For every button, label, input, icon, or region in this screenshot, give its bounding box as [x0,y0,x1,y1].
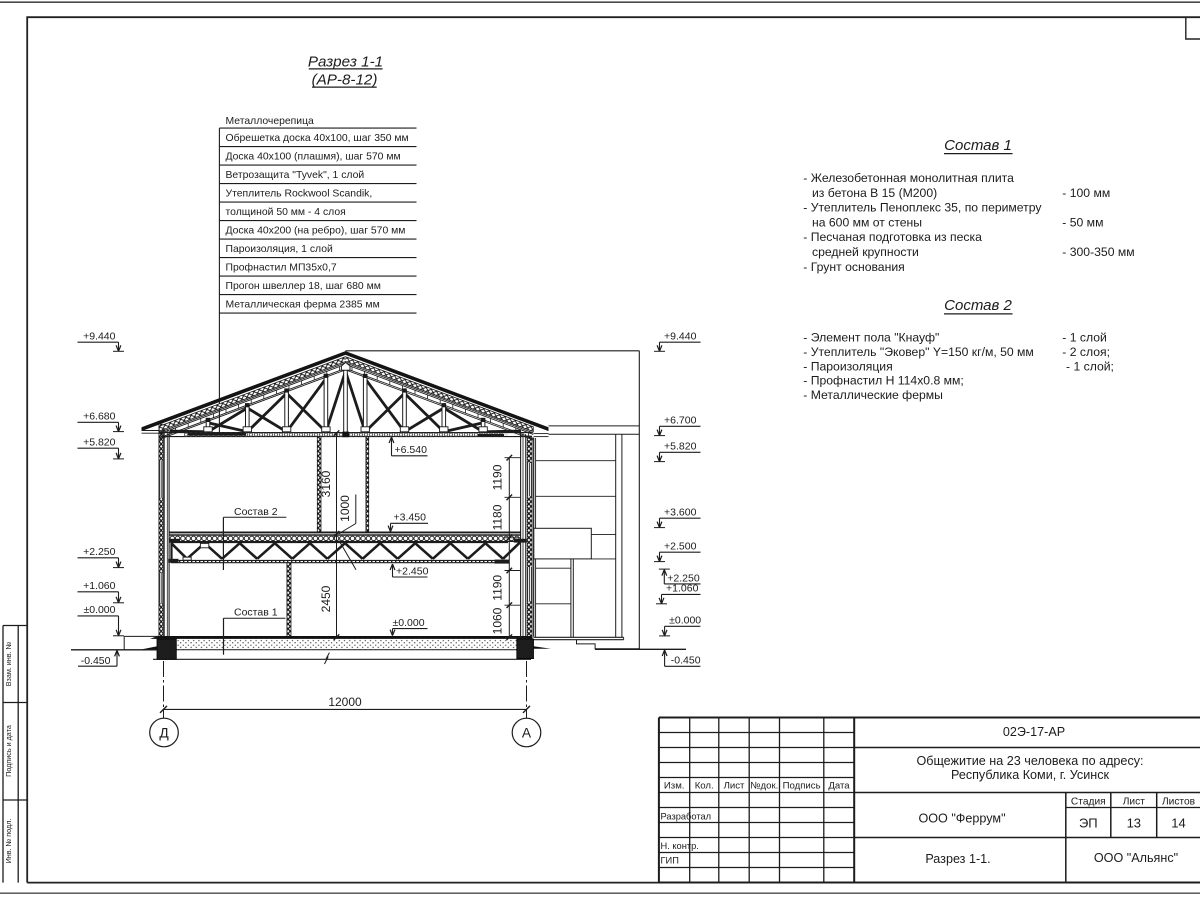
svg-text:Подпись: Подпись [783,781,821,792]
svg-text:13: 13 [1127,815,1141,830]
svg-text:ГИП: ГИП [661,855,679,865]
svg-text:+1.060: +1.060 [83,580,116,592]
svg-text:Обрешетка доска 40х100, шаг 35: Обрешетка доска 40х100, шаг 350 мм [226,132,409,144]
svg-text:Общежитие на 23 человека по ад: Общежитие на 23 человека по адресу: [916,754,1143,768]
svg-text:+2.250: +2.250 [83,546,116,558]
svg-text:Металлочерепица: Металлочерепица [226,116,315,127]
svg-text:Д: Д [159,725,169,740]
svg-text:- Утеплитель Пеноплекс 35, по: - Утеплитель Пеноплекс 35, по периметру [803,201,1042,215]
svg-text:+6.680: +6.680 [83,411,116,423]
svg-text:Кол.: Кол. [695,781,714,792]
svg-text:+9.440: +9.440 [83,330,116,342]
svg-text:средней крупности: средней крупности [812,245,919,259]
svg-text:Состав 2: Состав 2 [234,506,278,518]
svg-text:(АР-8-12): (АР-8-12) [312,71,378,88]
svg-text:- Элемент пола "Кнауф": - Элемент пола "Кнауф" [803,331,939,345]
svg-text:ООО "Альянс": ООО "Альянс" [1094,851,1178,865]
svg-text:- Утеплитель "Эковер" Y=150 кг: - Утеплитель "Эковер" Y=150 кг/м, 50 мм [803,345,1034,359]
svg-text:- Пароизоляция: - Пароизоляция [803,359,892,373]
svg-text:на 600 мм от стены: на 600 мм от стены [812,215,922,229]
svg-text:+5.820: +5.820 [664,441,697,453]
svg-text:+6.700: +6.700 [664,415,697,427]
svg-text:+2.450: +2.450 [396,565,429,577]
svg-text:- 2 слоя;: - 2 слоя; [1062,345,1110,359]
svg-text:Подпись и дата: Подпись и дата [4,725,13,777]
svg-text:±0.000: ±0.000 [669,615,701,627]
svg-text:Утеплитель Rockwool Scandik,: Утеплитель Rockwool Scandik, [226,189,373,200]
svg-text:Лист: Лист [724,781,745,792]
svg-text:+5.820: +5.820 [83,436,116,448]
svg-text:-0.450: -0.450 [81,655,111,667]
svg-text:1060: 1060 [491,607,505,634]
svg-text:Н. контр.: Н. контр. [661,841,699,851]
svg-text:- 100 мм: - 100 мм [1062,186,1110,200]
svg-text:02Э-17-АР: 02Э-17-АР [1003,725,1065,739]
svg-text:- Железобетонная монолитная п: - Железобетонная монолитная плита [803,171,1014,185]
svg-text:- 1 слой;: - 1 слой; [1066,359,1114,373]
svg-text:Стадия: Стадия [1071,796,1106,807]
svg-text:Металлическая ферма 2385 мм: Металлическая ферма 2385 мм [226,299,380,311]
svg-text:Состав 1: Состав 1 [944,137,1012,154]
svg-text:Доска 40х200 (на ребро), шаг 5: Доска 40х200 (на ребро), шаг 570 мм [226,225,406,237]
svg-text:+3.600: +3.600 [664,506,697,518]
svg-text:Состав 2: Состав 2 [944,297,1012,314]
svg-text:- 1 слой: - 1 слой [1062,331,1107,345]
svg-text:из бетона В 15 (М200): из бетона В 15 (М200) [812,186,937,200]
svg-text:Листов: Листов [1162,796,1195,807]
svg-text:Профнастил МП35х0,7: Профнастил МП35х0,7 [226,262,337,274]
svg-text:- 50 мм: - 50 мм [1062,215,1103,229]
svg-text:№док.: №док. [750,781,778,792]
svg-text:+3.450: +3.450 [394,512,427,524]
svg-text:Состав 1: Состав 1 [234,607,278,619]
svg-text:Ветрозащита "Tyvek", 1 слой: Ветрозащита "Tyvek", 1 слой [226,170,365,181]
svg-text:1000: 1000 [338,495,352,522]
svg-text:+1.060: +1.060 [666,583,699,595]
svg-text:14: 14 [1171,815,1185,830]
svg-text:Изм.: Изм. [664,781,685,792]
svg-text:Разрез 1-1: Разрез 1-1 [308,53,383,70]
svg-text:А: А [522,725,532,740]
svg-text:ЭП: ЭП [1079,815,1098,830]
svg-text:Разрез 1-1.: Разрез 1-1. [925,852,990,866]
svg-text:1180: 1180 [491,504,505,530]
svg-text:Доска 40х100 (плашмя), шаг 570: Доска 40х100 (плашмя), шаг 570 мм [226,152,401,163]
svg-text:Прогон швеллер 18, шаг 680 мм: Прогон швеллер 18, шаг 680 мм [226,281,381,292]
svg-text:Пароизоляция, 1 слой: Пароизоляция, 1 слой [226,244,333,255]
svg-text:- Песчаная подготовка из песка: - Песчаная подготовка из песка [803,230,982,244]
svg-text:12000: 12000 [328,695,362,709]
svg-text:2450: 2450 [319,585,333,612]
svg-text:Взам. инв. №: Взам. инв. № [4,641,13,686]
svg-text:ООО "Феррум": ООО "Феррум" [918,812,1005,826]
svg-text:Лист: Лист [1123,796,1145,807]
svg-text:+9.440: +9.440 [664,330,697,342]
svg-text:±0.000: ±0.000 [393,617,425,629]
svg-text:толщиной 50 мм - 4 слоя: толщиной 50 мм - 4 слоя [226,207,346,218]
svg-text:Дата: Дата [828,781,850,792]
svg-text:Республика Коми, г. Усинск: Республика Коми, г. Усинск [951,768,1110,782]
svg-text:Инв. № подл.: Инв. № подл. [4,819,13,864]
svg-text:3160: 3160 [319,470,333,497]
svg-text:-0.450: -0.450 [671,655,701,667]
svg-text:±0.000: ±0.000 [83,604,115,616]
svg-text:+6.540: +6.540 [395,444,428,456]
svg-text:1190: 1190 [491,464,505,490]
svg-text:- 300-350 мм: - 300-350 мм [1062,245,1134,259]
svg-text:- Металлические фермы: - Металлические фермы [803,388,943,402]
svg-text:- Грунт основания: - Грунт основания [803,260,904,274]
svg-text:1190: 1190 [491,575,505,601]
svg-text:Разработал: Разработал [661,811,712,821]
svg-text:- Профнастил Н 114х0.8 мм;: - Профнастил Н 114х0.8 мм; [803,374,963,388]
svg-text:+2.500: +2.500 [664,540,697,552]
